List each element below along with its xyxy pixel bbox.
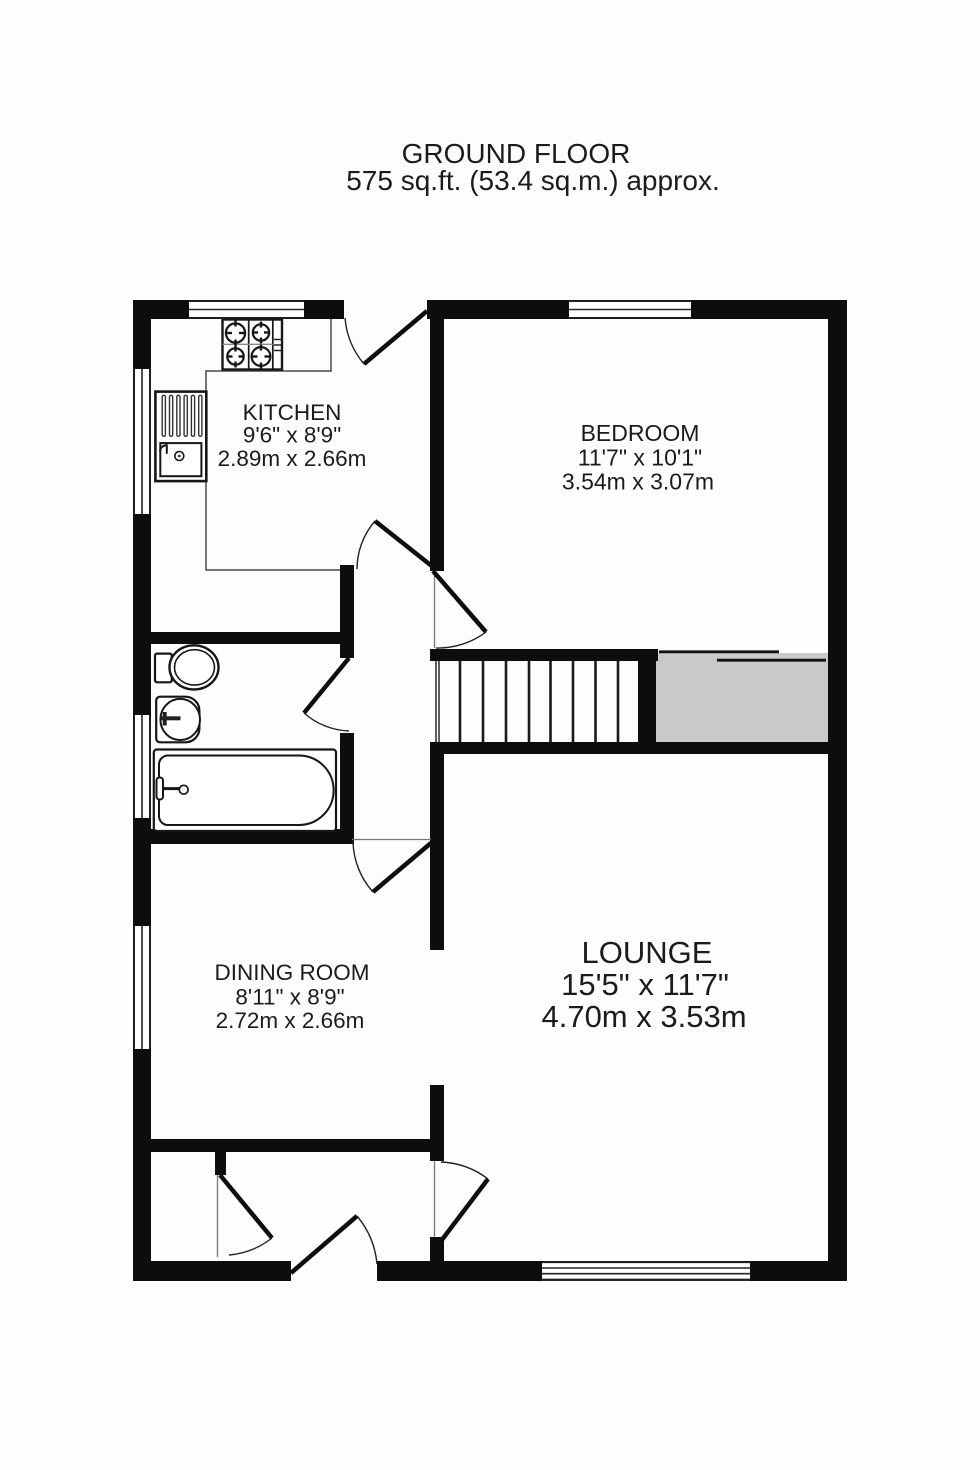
svg-text:2.89m x 2.66m: 2.89m x 2.66m	[218, 446, 367, 471]
svg-text:9'6" x 8'9": 9'6" x 8'9"	[243, 423, 341, 448]
svg-text:3.54m x 3.07m: 3.54m x 3.07m	[562, 469, 714, 495]
svg-text:KITCHEN: KITCHEN	[243, 400, 342, 425]
svg-text:2.72m x 2.66m: 2.72m x 2.66m	[216, 1008, 365, 1033]
svg-text:11'7" x 10'1": 11'7" x 10'1"	[578, 445, 702, 471]
svg-text:575 sq.ft. (53.4 sq.m.) approx: 575 sq.ft. (53.4 sq.m.) approx.	[346, 165, 720, 196]
svg-text:BEDROOM: BEDROOM	[581, 420, 700, 446]
svg-text:8'11" x 8'9": 8'11" x 8'9"	[235, 985, 344, 1010]
svg-text:4.70m x 3.53m: 4.70m x 3.53m	[541, 999, 746, 1034]
svg-text:DINING ROOM: DINING ROOM	[215, 960, 370, 985]
svg-text:15'5" x 11'7": 15'5" x 11'7"	[561, 967, 729, 1002]
svg-text:LOUNGE: LOUNGE	[582, 935, 713, 970]
